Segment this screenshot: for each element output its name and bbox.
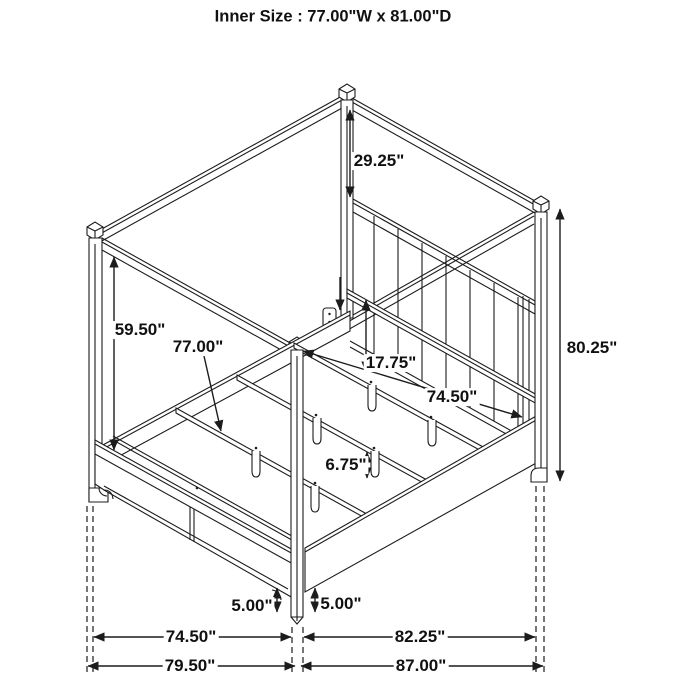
dim-post-below-canopy: 59.50" [113, 321, 168, 339]
dim-footboard-span: 74.50" [164, 628, 219, 646]
post-rear-right-foot [531, 468, 547, 482]
post-front-right [291, 350, 303, 624]
headboard [323, 199, 535, 450]
dim-center-leg-height: 6.75" [323, 456, 368, 474]
dim-rail-inner-length: 74.50" [425, 388, 480, 406]
dim-inner-width: 77.00" [171, 338, 226, 356]
dim-foot-clearance-front: 5.00" [229, 597, 274, 615]
dim-overall-width: 79.50" [163, 657, 218, 675]
dim-deck-height: 17.75" [364, 354, 419, 372]
diagram-title: Inner Size : 77.00"W x 81.00"D [215, 8, 452, 27]
dim-canopy-to-headboard: 29.25" [352, 152, 407, 170]
canopy-corner-cap-front-left [87, 222, 103, 240]
post-rear-left [341, 100, 353, 318]
dimension-arrows [88, 110, 560, 666]
dim-foot-clearance-side: 5.00" [318, 595, 363, 613]
canopy-frame [87, 84, 549, 356]
canopy-corner-cap-rear-right [533, 196, 549, 214]
dim-siderail-span: 82.25" [393, 628, 448, 646]
canopy-bed-dimension-diagram: Inner Size : 77.00"W x 81.00"D 29.25" 59… [0, 0, 700, 700]
dim-overall-depth: 87.00" [394, 657, 449, 675]
canopy-corner-cap-rear-left [339, 84, 355, 102]
dim-overall-height: 80.25" [565, 339, 620, 357]
